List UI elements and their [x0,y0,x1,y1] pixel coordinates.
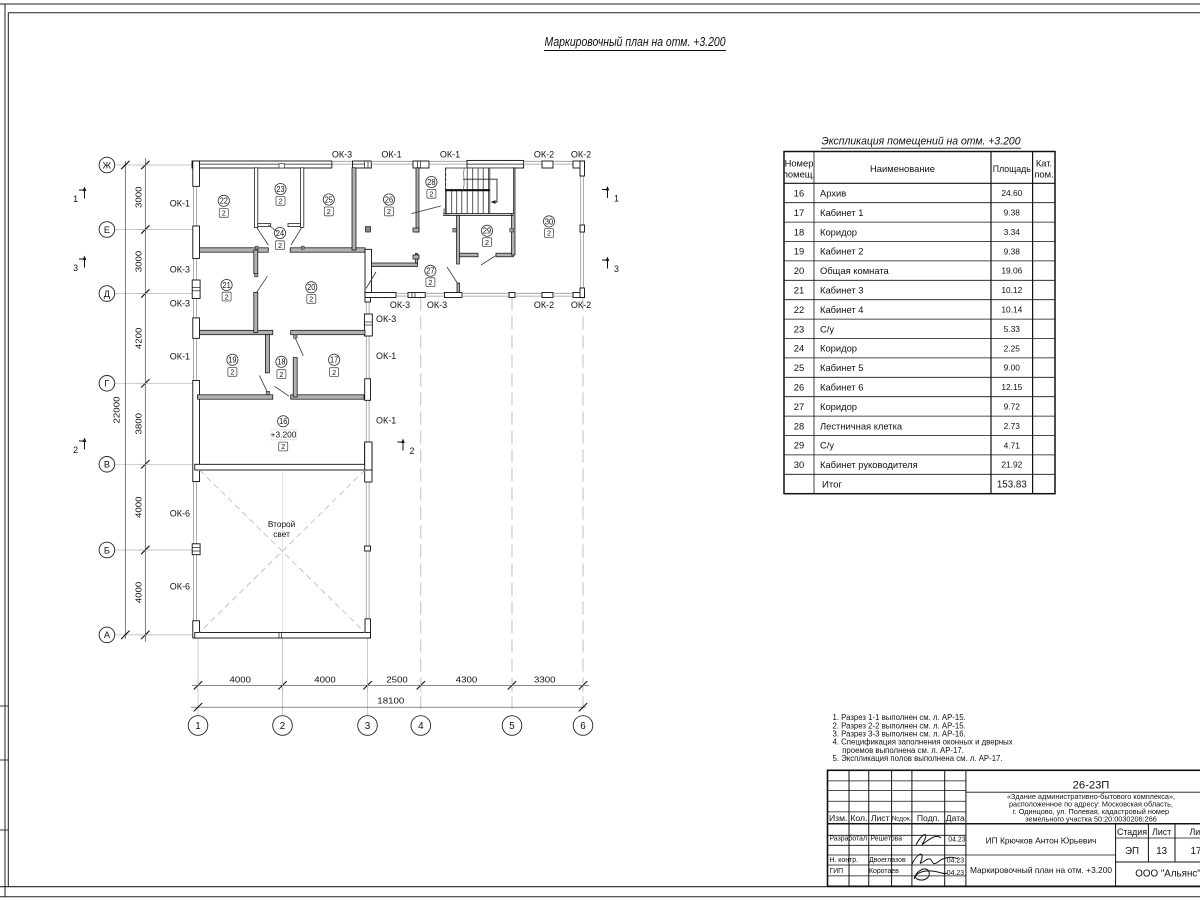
svg-text:Второй: Второй [268,519,296,529]
svg-text:3000: 3000 [134,250,143,272]
svg-text:ОК-3: ОК-3 [332,150,352,160]
svg-text:Коридор: Коридор [820,226,857,237]
svg-text:2: 2 [278,241,282,250]
svg-text:2: 2 [309,295,313,304]
svg-text:Двоеглазов: Двоеглазов [869,857,906,864]
svg-text:ОК-1: ОК-1 [381,150,401,160]
svg-text:2500: 2500 [386,676,408,685]
svg-text:18: 18 [277,358,286,367]
svg-text:ОК-2: ОК-2 [571,300,591,310]
svg-text:10.14: 10.14 [1001,305,1022,315]
svg-text:04.23: 04.23 [948,836,965,843]
svg-text:Коридор: Коридор [820,343,857,354]
svg-text:А: А [104,630,111,640]
svg-text:ОК-6: ОК-6 [170,582,190,592]
svg-text:2: 2 [485,238,489,247]
svg-text:23: 23 [276,185,285,194]
svg-text:21: 21 [223,281,231,290]
svg-text:ОК-3: ОК-3 [427,300,447,310]
svg-text:2: 2 [230,368,234,377]
svg-text:Площадь: Площадь [993,163,1031,174]
svg-text:земельного участка 50:20:00302: земельного участка 50:20:0030206:266 [1025,814,1157,823]
svg-text:18: 18 [794,226,804,237]
svg-text:25: 25 [325,195,334,204]
svg-text:2: 2 [73,445,78,455]
svg-text:2: 2 [428,278,432,287]
svg-text:Кабинет руководителя: Кабинет руководителя [820,459,918,470]
svg-text:27: 27 [794,401,804,412]
svg-text:Итог: Итог [822,480,843,491]
svg-text:Н. контр.: Н. контр. [830,857,859,864]
svg-text:2: 2 [280,721,285,732]
svg-text:25: 25 [794,362,804,373]
svg-text:24.60: 24.60 [1001,188,1022,198]
svg-text:4000: 4000 [134,496,143,518]
svg-text:28: 28 [427,178,436,187]
svg-text:Подп.: Подп. [917,813,940,823]
svg-text:Кабинет 2: Кабинет 2 [820,246,863,257]
svg-text:4200: 4200 [134,327,143,349]
svg-text:Кабинет 3: Кабинет 3 [820,285,863,296]
svg-text:10.12: 10.12 [1001,285,1022,295]
svg-text:16: 16 [279,417,288,426]
svg-text:Лист(ов): Лист(ов) [1190,827,1200,837]
svg-text:20: 20 [307,283,316,292]
svg-text:Д: Д [104,289,111,299]
svg-text:2: 2 [429,190,433,199]
svg-text:ОК-2: ОК-2 [571,150,591,160]
svg-text:2: 2 [222,209,226,218]
svg-text:Маркировочный план на отм. +3.: Маркировочный план на отм. +3.200 [970,865,1112,875]
svg-text:3800: 3800 [134,413,143,435]
svg-text:Коридор: Коридор [820,401,857,412]
svg-text:Лист: Лист [1152,827,1171,837]
svg-text:24: 24 [276,229,285,238]
svg-text:2: 2 [547,229,551,238]
svg-text:3: 3 [73,263,78,273]
svg-text:26: 26 [385,195,394,204]
svg-text:19: 19 [794,246,804,257]
svg-text:04.23: 04.23 [947,870,964,877]
svg-text:27: 27 [426,267,434,276]
svg-text:2: 2 [281,442,285,451]
svg-text:2: 2 [327,207,331,216]
svg-text:04.23: 04.23 [947,858,964,865]
svg-text:1: 1 [195,721,200,732]
svg-text:24: 24 [794,343,804,354]
svg-text:Б: Б [104,545,110,555]
svg-text:Общая комната: Общая комната [820,265,890,276]
svg-text:30: 30 [545,217,554,226]
svg-text:ОК-3: ОК-3 [170,264,190,274]
svg-text:1: 1 [614,194,619,204]
svg-text:ОК-2: ОК-2 [534,150,554,160]
svg-text:21: 21 [794,285,804,296]
svg-text:17: 17 [330,356,338,365]
svg-text:29: 29 [483,227,492,236]
svg-text:19.06: 19.06 [1001,266,1022,276]
svg-text:ОК-1: ОК-1 [376,351,396,361]
svg-text:3300: 3300 [534,676,556,685]
svg-text:12.15: 12.15 [1001,382,1022,392]
svg-text:ОК-3: ОК-3 [376,314,396,324]
svg-text:17: 17 [794,207,804,218]
svg-text:16: 16 [794,188,804,199]
svg-text:4000: 4000 [134,581,143,603]
svg-text:ОК-1: ОК-1 [376,416,396,426]
svg-text:153.83: 153.83 [997,480,1028,491]
svg-text:4000: 4000 [314,676,336,685]
svg-text:Экспликация помещений на отм.: Экспликация помещений на отм. +3.200 [822,135,1022,147]
svg-text:ОК-1: ОК-1 [170,352,190,362]
svg-text:17: 17 [1191,846,1200,857]
svg-text:26: 26 [794,382,804,393]
svg-text:В: В [104,460,110,470]
svg-text:Кат.: Кат. [1036,158,1052,169]
svg-text:2: 2 [225,292,229,301]
svg-text:3.34: 3.34 [1004,227,1021,237]
svg-text:22: 22 [220,197,228,206]
svg-text:Лестничная клетка: Лестничная клетка [820,420,903,431]
svg-text:30: 30 [794,459,804,470]
svg-text:Изм.: Изм. [829,813,847,823]
svg-text:Лист: Лист [871,813,890,823]
svg-text:С/у: С/у [820,440,834,451]
svg-text:9.72: 9.72 [1004,402,1021,412]
svg-text:22: 22 [794,304,804,315]
svg-text:Кабинет 6: Кабинет 6 [820,382,863,393]
svg-text:1: 1 [73,194,78,204]
svg-text:ОК-6: ОК-6 [170,508,190,518]
svg-text:2: 2 [332,368,336,377]
svg-text:20: 20 [794,265,804,276]
svg-text:9.38: 9.38 [1004,246,1021,256]
svg-text:4300: 4300 [456,676,478,685]
svg-text:2: 2 [387,207,391,216]
svg-text:4: 4 [418,721,424,732]
svg-text:3000: 3000 [134,186,143,208]
svg-text:ИП Крючков Антон Юрьевич: ИП Крючков Антон Юрьевич [986,836,1097,846]
svg-text:23: 23 [794,323,804,334]
svg-text:Е: Е [104,225,110,235]
svg-text:Дата: Дата [946,813,965,823]
svg-text:5: 5 [509,721,515,732]
svg-text:ОК-1: ОК-1 [440,150,460,160]
svg-text:3: 3 [614,264,619,274]
svg-text:С/у: С/у [820,323,834,334]
svg-text:21.92: 21.92 [1001,460,1022,470]
svg-text:+3.200: +3.200 [271,430,297,440]
svg-text:ГИП: ГИП [830,868,844,875]
svg-text:Кабинет 4: Кабинет 4 [820,304,863,315]
svg-text:Маркировочный план на отм. +3.: Маркировочный план на отм. +3.200 [545,34,727,49]
svg-text:4.71: 4.71 [1004,440,1021,450]
svg-text:13: 13 [1156,846,1167,857]
svg-text:ОК-3: ОК-3 [170,299,190,309]
svg-text:Номер: Номер [785,158,814,169]
svg-text:Разработал: Разработал [830,835,868,843]
svg-text:2.25: 2.25 [1004,343,1021,353]
svg-text:18100: 18100 [377,697,405,706]
svg-text:помещ.: помещ. [783,169,815,180]
svg-text:Ж: Ж [103,160,112,170]
svg-text:Г: Г [104,379,109,389]
svg-text:Коротаев: Коротаев [869,868,899,875]
svg-text:29: 29 [794,440,804,451]
svg-text:6: 6 [580,721,586,732]
svg-text:9.38: 9.38 [1004,208,1021,218]
svg-text:28: 28 [794,420,804,431]
svg-text:2: 2 [279,197,283,206]
svg-text:Архив: Архив [820,188,846,199]
svg-text:4000: 4000 [230,676,252,685]
svg-text:26-23П: 26-23П [1073,779,1110,791]
svg-text:19: 19 [228,356,237,365]
svg-text:5. Экспликация полов выполнена: 5. Экспликация полов выполнена см. л. АР… [833,754,1003,763]
svg-text:ОК-1: ОК-1 [170,199,190,209]
svg-text:свет: свет [273,529,290,539]
svg-text:22000: 22000 [113,396,122,424]
svg-text:ЭП: ЭП [1125,846,1139,857]
svg-text:пом.: пом. [1034,169,1053,180]
svg-text:2: 2 [279,370,283,379]
svg-text:5.33: 5.33 [1004,324,1021,334]
svg-text:3: 3 [365,721,371,732]
svg-text:Кабинет 5: Кабинет 5 [820,362,863,373]
svg-text:№док.: №док. [892,815,912,822]
svg-text:ОК-2: ОК-2 [534,300,554,310]
svg-text:Стадия: Стадия [1117,827,1147,837]
svg-text:Кабинет 1: Кабинет 1 [820,207,863,218]
svg-text:Кол.: Кол. [850,813,867,823]
svg-text:2: 2 [410,446,415,456]
svg-text:Решетова: Решетова [871,836,903,843]
svg-text:ООО "Альянс": ООО "Альянс" [1135,869,1200,880]
svg-text:Наименование: Наименование [870,163,935,174]
svg-text:9.00: 9.00 [1004,363,1021,373]
svg-text:ОК-3: ОК-3 [390,300,410,310]
svg-text:2.73: 2.73 [1004,421,1021,431]
